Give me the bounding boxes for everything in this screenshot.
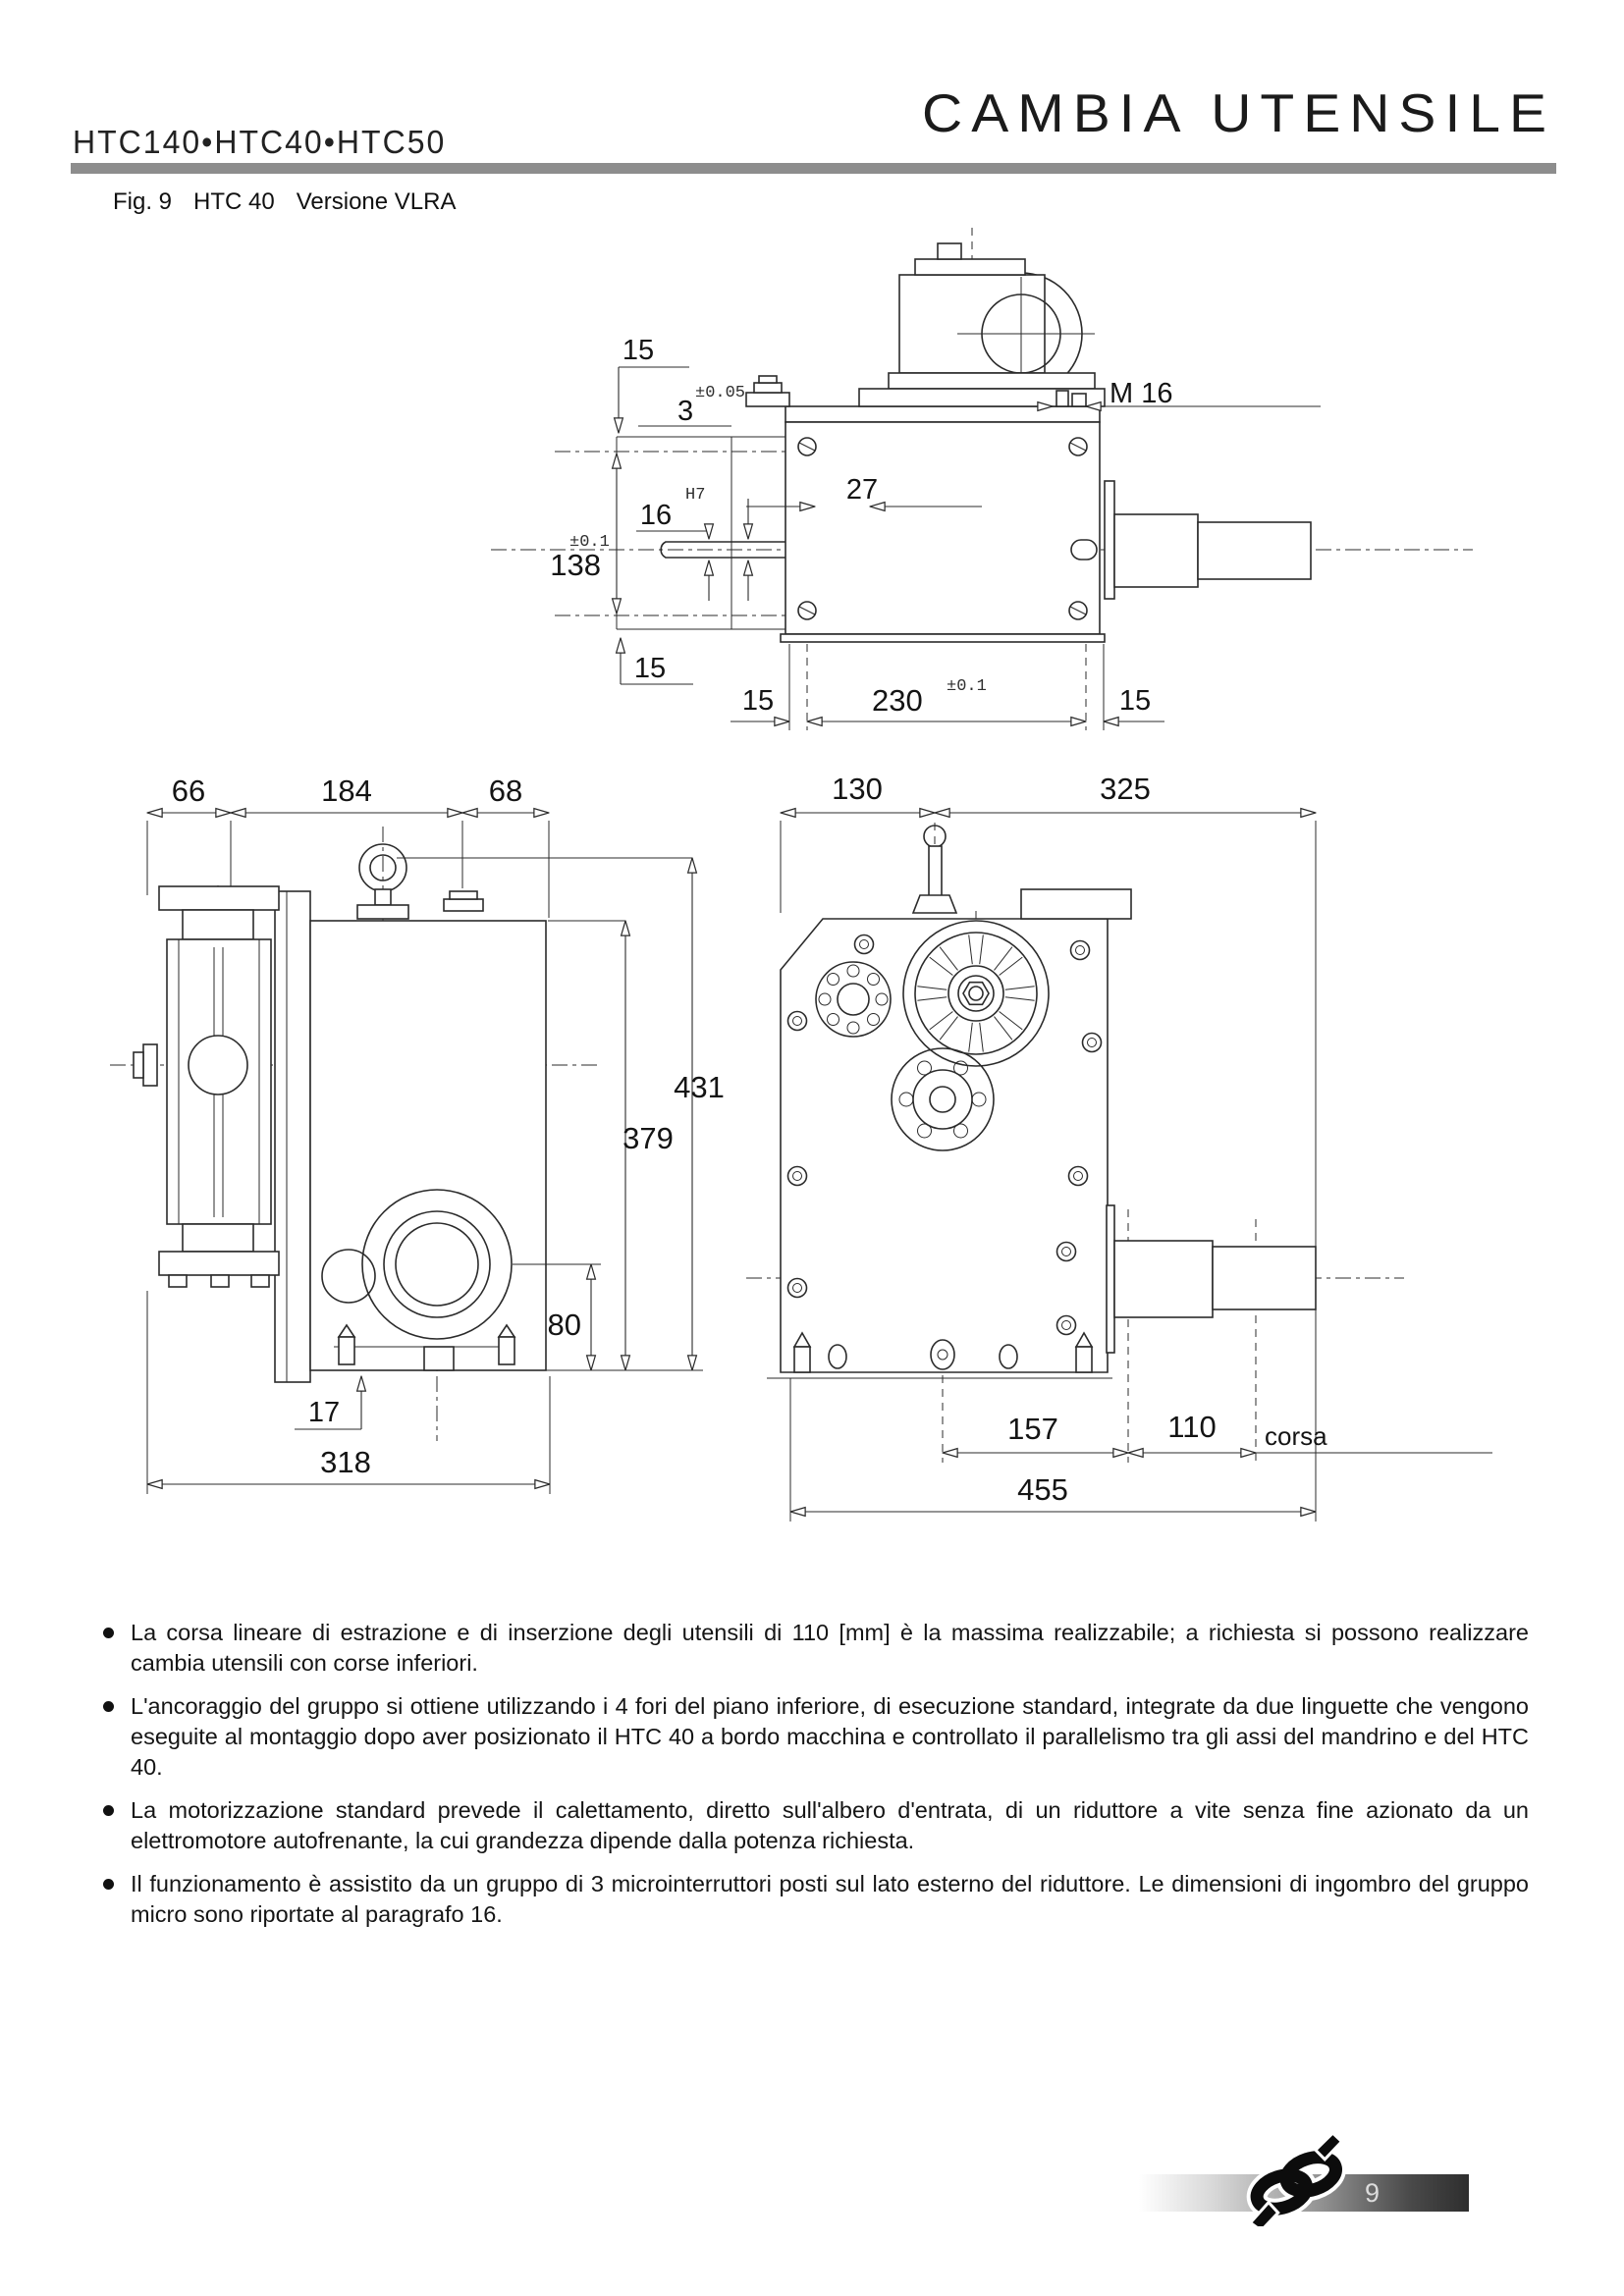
- dim-184: 184: [321, 774, 372, 808]
- dim-138: 138: [550, 548, 601, 582]
- dim-15-mid: 15: [634, 653, 666, 684]
- dim-3-tol: ±0.05: [695, 384, 745, 402]
- page-number: 9: [1365, 2178, 1380, 2209]
- list-item: L'ancoraggio del gruppo si ottiene utili…: [103, 1691, 1529, 1783]
- dim-455: 455: [1017, 1472, 1068, 1507]
- dim-m16: M 16: [1110, 378, 1172, 409]
- dim-230-tol: ±0.1: [947, 677, 987, 696]
- bullet-icon: [103, 1879, 114, 1890]
- note-text: La corsa lineare di estrazione e di inse…: [131, 1618, 1529, 1679]
- rear-view: 130 325: [746, 772, 1492, 1522]
- dim-16: 16: [640, 500, 672, 531]
- dim-3: 3: [677, 396, 693, 427]
- bullet-icon: [103, 1701, 114, 1712]
- dim-157: 157: [1007, 1412, 1058, 1446]
- dim-15-br: 15: [1119, 685, 1151, 717]
- brand-logo-icon: [1222, 2128, 1370, 2226]
- note-text: La motorizzazione standard prevede il ca…: [131, 1795, 1529, 1856]
- side-view: 15 3 ±0.05 M 16 16 H7 27 138 ±0.1 15: [491, 228, 1473, 730]
- dim-17: 17: [308, 1397, 340, 1428]
- notes-list: La corsa lineare di estrazione e di inse…: [103, 1618, 1529, 1943]
- dim-66: 66: [172, 774, 205, 808]
- dim-230: 230: [872, 683, 923, 718]
- list-item: La motorizzazione standard prevede il ca…: [103, 1795, 1529, 1856]
- dim-431: 431: [674, 1070, 725, 1104]
- list-item: La corsa lineare di estrazione e di inse…: [103, 1618, 1529, 1679]
- dim-27: 27: [846, 474, 878, 506]
- front-view: 66 184 68: [110, 774, 725, 1494]
- note-text: L'ancoraggio del gruppo si ottiene utili…: [131, 1691, 1529, 1783]
- dim-130: 130: [832, 772, 883, 806]
- bullet-icon: [103, 1628, 114, 1638]
- manual-page: HTC140•HTC40•HTC50 CAMBIA UTENSILE Fig. …: [0, 0, 1624, 2296]
- dim-138-tol: ±0.1: [569, 533, 610, 552]
- dim-325: 325: [1100, 772, 1151, 806]
- technical-drawing: 15 3 ±0.05 M 16 16 H7 27 138 ±0.1 15: [0, 0, 1624, 2296]
- dim-15-top: 15: [623, 335, 654, 366]
- dim-16-fit: H7: [685, 486, 705, 505]
- dim-318: 318: [320, 1445, 371, 1479]
- label-corsa: corsa: [1265, 1421, 1327, 1451]
- bullet-icon: [103, 1805, 114, 1816]
- list-item: Il funzionamento è assistito da un grupp…: [103, 1869, 1529, 1930]
- note-text: Il funzionamento è assistito da un grupp…: [131, 1869, 1529, 1930]
- dim-15-bl: 15: [742, 685, 774, 717]
- dim-379: 379: [623, 1121, 674, 1155]
- dim-110: 110: [1167, 1410, 1216, 1444]
- dim-68: 68: [489, 774, 522, 808]
- dim-80: 80: [548, 1308, 581, 1342]
